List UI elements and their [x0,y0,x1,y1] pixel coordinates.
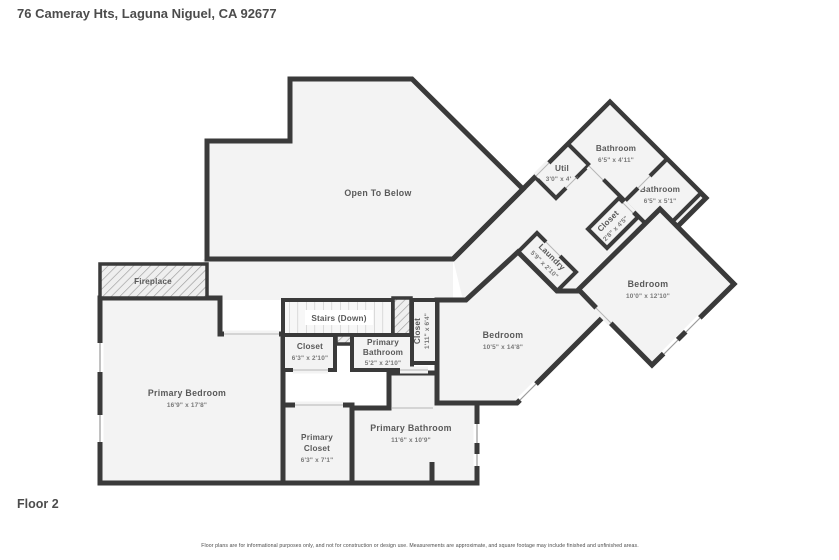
floorplan-canvas: 76 Cameray Hts, Laguna Niguel, CA 92677 … [0,0,839,560]
closet-hall-dims: 6'3" x 2'10" [292,355,328,362]
disclaimer-text: Floor plans are for informational purpos… [201,543,638,549]
room-open-to-below: Open To Below [207,79,523,259]
room-closet-tall: Closet 1'11" x 6'4" [412,300,437,363]
primary-bathroom-dims: 11'6" x 10'9" [391,437,431,444]
primary-bathroom-small-name1: Primary [367,338,399,347]
wall-chase-hatch [336,335,352,344]
primary-bathroom-name: Primary Bathroom [370,423,452,433]
fireplace: Fireplace [100,264,207,298]
bedroom-right-name: Bedroom [628,279,669,289]
bedroom-right-dims: 10'0" x 12'10" [626,293,670,300]
room-closet-hall: Closet 6'3" x 2'10" [283,335,335,370]
address-title: 76 Cameray Hts, Laguna Niguel, CA 92677 [17,6,277,21]
open-to-below-label: Open To Below [344,188,411,198]
room-primary-bedroom: Primary Bedroom 16'9" x 17'8" [100,298,283,483]
bathroom-right-dims: 6'5" x 5'1" [644,198,677,205]
primary-closet-name2: Closet [304,444,330,453]
primary-closet-dims: 6'3" x 7'1" [301,457,334,464]
primary-bathroom-small-dims: 5'2" x 2'10" [365,360,401,367]
closet-tall-name: Closet [413,318,422,344]
room-primary-closet: Primary Closet 6'3" x 7'1" [283,405,352,483]
primary-closet-name1: Primary [301,433,333,442]
fireplace-label: Fireplace [134,277,172,286]
bathroom-top-dims: 6'5" x 4'11" [598,157,634,164]
floorplan-page: 76 Cameray Hts, Laguna Niguel, CA 92677 … [0,0,839,560]
primary-bathroom-small-name2: Bathroom [363,348,403,357]
stairs-down: Stairs (Down) [283,298,411,335]
bedroom-center-dims: 10'5" x 14'8" [483,344,523,351]
bathroom-right-name: Bathroom [640,185,680,194]
closet-hall-name: Closet [297,342,323,351]
primary-bedroom-name: Primary Bedroom [148,388,226,398]
util-name: Util [555,164,569,173]
bathroom-top-name: Bathroom [596,144,636,153]
bedroom-center-name: Bedroom [483,330,524,340]
floor-label: Floor 2 [17,497,59,511]
stairs-label: Stairs (Down) [311,314,366,323]
primary-bedroom-dims: 16'9" x 17'8" [167,402,207,409]
room-primary-bathroom-small: Primary Bathroom 5'2" x 2'10" [352,335,412,370]
closet-tall-dims: 1'11" x 6'4" [424,313,431,349]
